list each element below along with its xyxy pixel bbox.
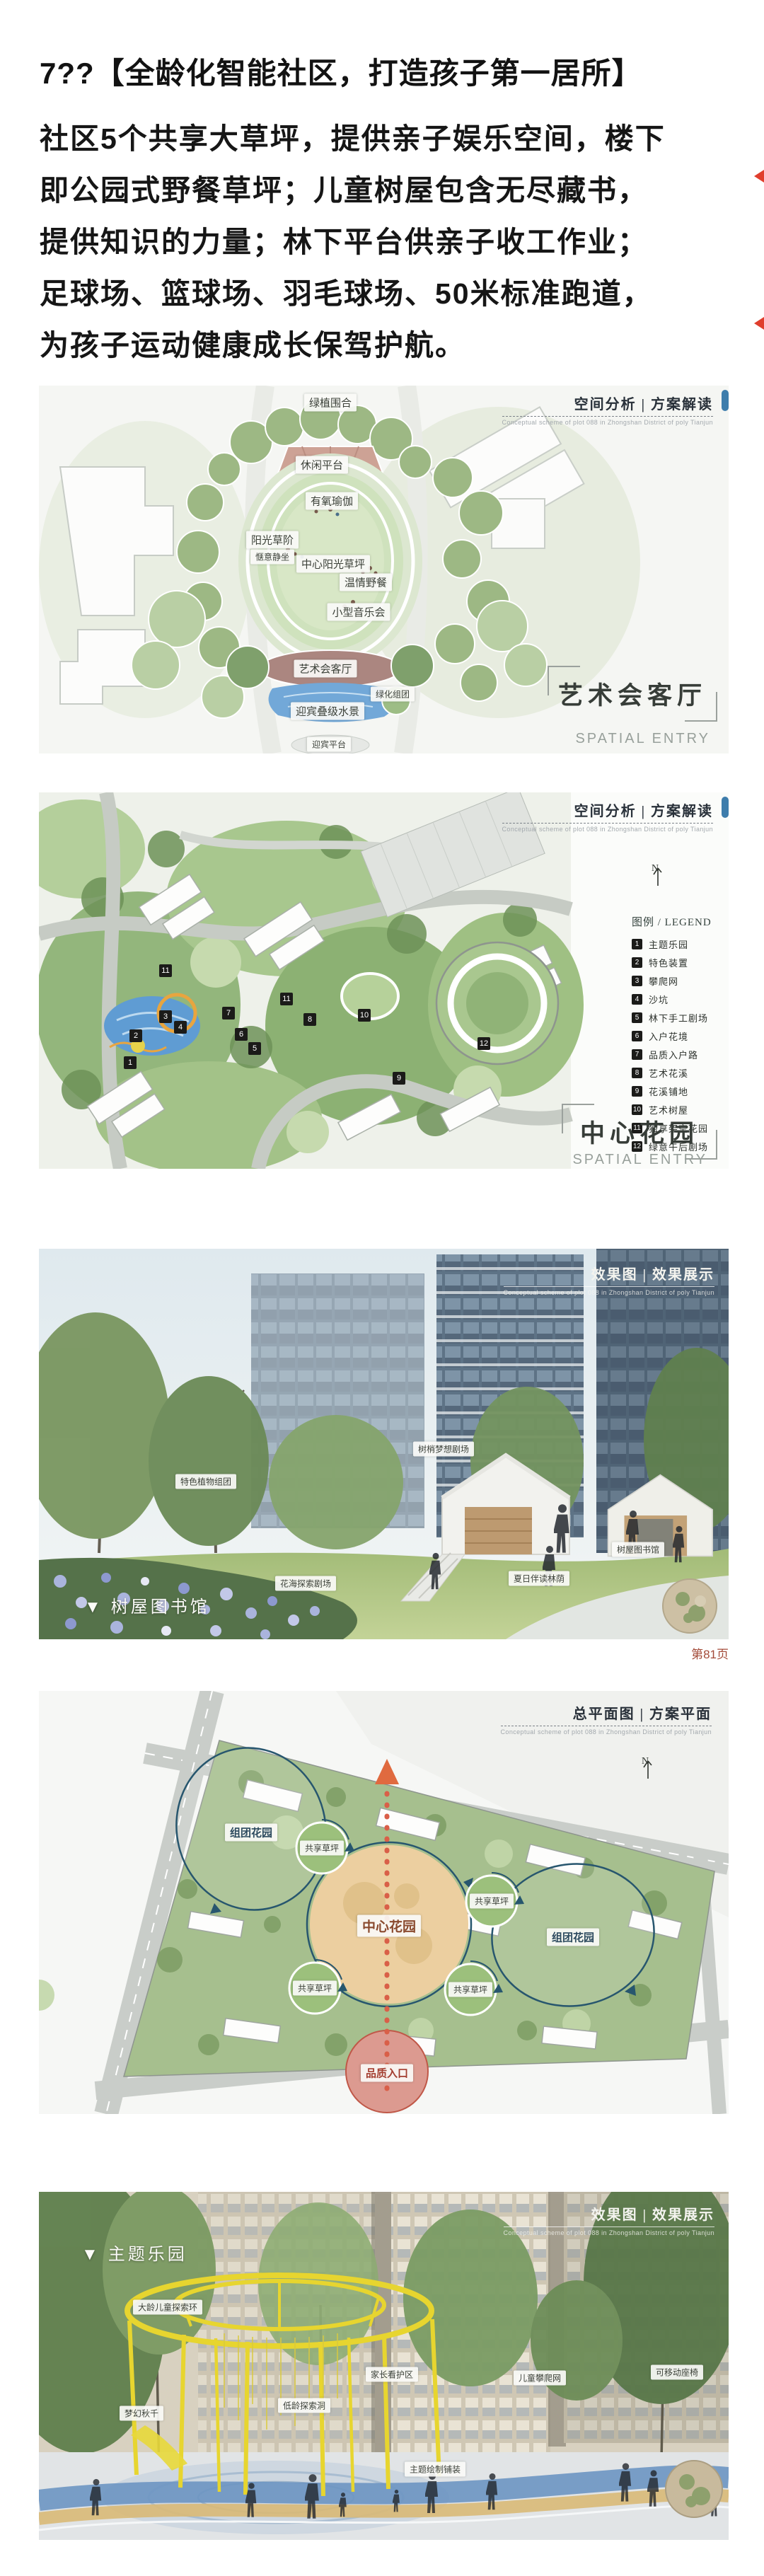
- paragraph-line: 提供知识的力量；林下平台供亲子收工作业；: [40, 216, 743, 268]
- figure-header-subtitle: Conceptual scheme of plot 088 in Zhongsh…: [502, 419, 713, 426]
- legend-item: 7品质入户路: [632, 1048, 712, 1061]
- render-label-explore-ring: 大龄儿童探索环: [133, 2300, 202, 2315]
- figure-treehouse-library-render: 效果图 | 效果展示 Conceptual scheme of plot 088…: [39, 1249, 729, 1639]
- plan-label-cluster-garden: 组团花园: [225, 1824, 277, 1842]
- figure-header: 效果图 | 效果展示 Conceptual scheme of plot 088…: [504, 1263, 714, 1296]
- plan-marker: 6: [235, 1028, 248, 1041]
- north-compass-icon: N: [652, 863, 659, 875]
- legend-item: 1主题乐园: [632, 937, 712, 951]
- figure-header-subtitle: Conceptual scheme of plot 088 in Zhongsh…: [502, 826, 713, 833]
- plan-label-shared-lawn: 共享草坪: [300, 1841, 344, 1856]
- plan-label-green-cluster: 绿化组团: [371, 687, 415, 702]
- plan-marker: 11: [159, 964, 172, 977]
- figure-header: 效果图 | 效果展示 Conceptual scheme of plot 088…: [504, 2203, 714, 2236]
- render-label-movable-seat: 可移动座椅: [651, 2365, 703, 2380]
- plan-label-shared-lawn: 共享草坪: [448, 1982, 492, 1997]
- plan-marker: 4: [174, 1021, 187, 1034]
- legend-item: 3攀爬网: [632, 974, 712, 988]
- plan-label-central-lawn: 中心阳光草坪: [296, 555, 370, 573]
- render-label-reading-shade: 夏日伴读林荫: [509, 1571, 569, 1586]
- red-edge-marker: [754, 317, 764, 330]
- paragraph-line: 足球场、篮球场、羽毛球场、50米标准跑道，: [40, 268, 743, 320]
- figure-caption-box: 艺术会客厅: [548, 666, 717, 722]
- plan-marker: 1: [124, 1056, 137, 1069]
- plan-marker: 10: [358, 1009, 371, 1022]
- figure-caption-subtitle: SPATIAL ENTRY: [575, 731, 710, 747]
- figure-header-subtitle: Conceptual scheme of plot 088 in Zhongsh…: [501, 1728, 712, 1735]
- figure-header-title: 效果图 | 效果展示: [504, 2203, 714, 2227]
- red-edge-marker: [754, 170, 764, 183]
- plan-marker: 5: [248, 1042, 261, 1055]
- north-compass-icon: N: [642, 1756, 649, 1768]
- figure-art-living-room-plan: 空间分析 | 方案解读 Conceptual scheme of plot 08…: [39, 386, 729, 753]
- render-label-treetop-theater: 树梢梦想剧场: [413, 1442, 474, 1457]
- render-label-guardian-area: 家长看护区: [366, 2367, 418, 2382]
- legend-item: 9花溪铺地: [632, 1085, 712, 1098]
- legend-item: 5林下手工剧场: [632, 1011, 712, 1024]
- page-title: 7??【全龄化智能社区，打造孩子第一居所】: [40, 50, 642, 93]
- legend-title: 图例 / LEGEND: [632, 914, 712, 929]
- master-plan-illustration: [39, 1691, 729, 2114]
- plan-label-art-room: 艺术会客厅: [294, 660, 357, 678]
- figure-header-title: 总平面图 | 方案平面: [501, 1702, 712, 1726]
- legend-item: 2特色装置: [632, 956, 712, 969]
- figure-master-plan: 总平面图 | 方案平面 Conceptual scheme of plot 08…: [39, 1691, 729, 2114]
- figure-caption-title: 艺术会客厅: [555, 676, 710, 712]
- legend-item: 8艺术花溪: [632, 1066, 712, 1080]
- figure-header-subtitle: Conceptual scheme of plot 088 in Zhongsh…: [504, 2229, 714, 2236]
- paragraph-line: 即公园式野餐草坪；儿童树屋包含无尽藏书，: [40, 165, 743, 216]
- plan-label-quality-entrance: 品质入口: [361, 2064, 413, 2082]
- figure-theme-playground-render: 效果图 | 效果展示 Conceptual scheme of plot 088…: [39, 2192, 729, 2540]
- header-bookmark-icon: [722, 390, 729, 411]
- photo-caption: ▼ 树屋图书馆: [84, 1593, 210, 1617]
- plan-marker: 11: [280, 993, 293, 1005]
- render-label-toddler-cave: 低龄探索洞: [278, 2398, 330, 2413]
- render-illustration: [39, 1249, 729, 1639]
- plan-label-green-enclosure: 绿植围合: [304, 394, 357, 412]
- plan-label-sitting: 惬意静坐: [250, 550, 294, 565]
- plan-label-cluster-garden: 组团花园: [547, 1929, 599, 1946]
- plan-label-picnic: 温情野餐: [340, 574, 392, 591]
- render-label-treehouse-library: 树屋图书馆: [612, 1542, 664, 1557]
- figure-header: 空间分析 | 方案解读 Conceptual scheme of plot 08…: [502, 799, 713, 833]
- header-bookmark-icon: [722, 797, 729, 818]
- figure-caption-subtitle: SPATIAL ENTRY: [572, 1152, 707, 1168]
- figure-header-title: 空间分析 | 方案解读: [502, 393, 713, 417]
- render-label-dream-swing: 梦幻秋千: [120, 2406, 163, 2421]
- legend-item: 4沙坑: [632, 993, 712, 1006]
- figure-header-title: 效果图 | 效果展示: [504, 1263, 714, 1287]
- plan-marker: 8: [303, 1013, 316, 1026]
- figure-caption-title: 中心花园: [569, 1114, 710, 1150]
- paragraph-line: 为孩子运动健康成长保驾护航。: [40, 320, 743, 371]
- north-arrow-icon: [652, 863, 664, 887]
- figure-central-garden-plan: 空间分析 | 方案解读 Conceptual scheme of plot 08…: [39, 792, 729, 1169]
- plan-marker: 7: [222, 1007, 235, 1020]
- plan-marker: 3: [159, 1010, 172, 1023]
- paragraph-line: 社区5个共享大草坪，提供亲子娱乐空间，楼下: [40, 113, 743, 165]
- page-number: 第81页: [39, 1644, 729, 1662]
- legend-item: 6入户花境: [632, 1029, 712, 1043]
- render-label-climbing-net: 儿童攀爬网: [514, 2371, 566, 2386]
- plan-label-concert: 小型音乐会: [327, 603, 390, 621]
- north-arrow-icon: [642, 1756, 654, 1780]
- intro-paragraph: 社区5个共享大草坪，提供亲子娱乐空间，楼下 即公园式野餐草坪；儿童树屋包含无尽藏…: [40, 113, 743, 371]
- render-label-plant-cluster: 特色植物组团: [175, 1474, 236, 1489]
- figure-header: 空间分析 | 方案解读 Conceptual scheme of plot 08…: [502, 393, 713, 426]
- plan-label-leisure-platform: 休闲平台: [296, 456, 348, 474]
- figure-header-subtitle: Conceptual scheme of plot 088 in Zhongsh…: [504, 1289, 714, 1296]
- render-label-theme-paving: 主题绘制铺装: [405, 2462, 465, 2477]
- figure-header-title: 空间分析 | 方案解读: [502, 799, 713, 824]
- render-label-flower-theater: 花海探索剧场: [275, 1576, 336, 1591]
- plan-label-yoga: 有氧瑜伽: [306, 492, 358, 510]
- plan-marker: 9: [393, 1072, 405, 1085]
- plan-marker: 12: [477, 1037, 490, 1050]
- figure-header: 总平面图 | 方案平面 Conceptual scheme of plot 08…: [501, 1702, 712, 1735]
- plan-label-lawn-steps: 阳光草阶: [246, 531, 299, 549]
- photo-caption: ▼ 主题乐园: [81, 2240, 187, 2265]
- plan-label-shared-lawn: 共享草坪: [293, 1981, 337, 1996]
- plan-label-water-feature: 迎宾叠级水景: [291, 703, 364, 720]
- plan-label-central-garden: 中心花园: [357, 1915, 421, 1937]
- plan-marker: 2: [129, 1029, 142, 1042]
- plan-label-shared-lawn: 共享草坪: [470, 1894, 514, 1909]
- plan-label-welcome-platform: 迎宾平台: [307, 737, 351, 752]
